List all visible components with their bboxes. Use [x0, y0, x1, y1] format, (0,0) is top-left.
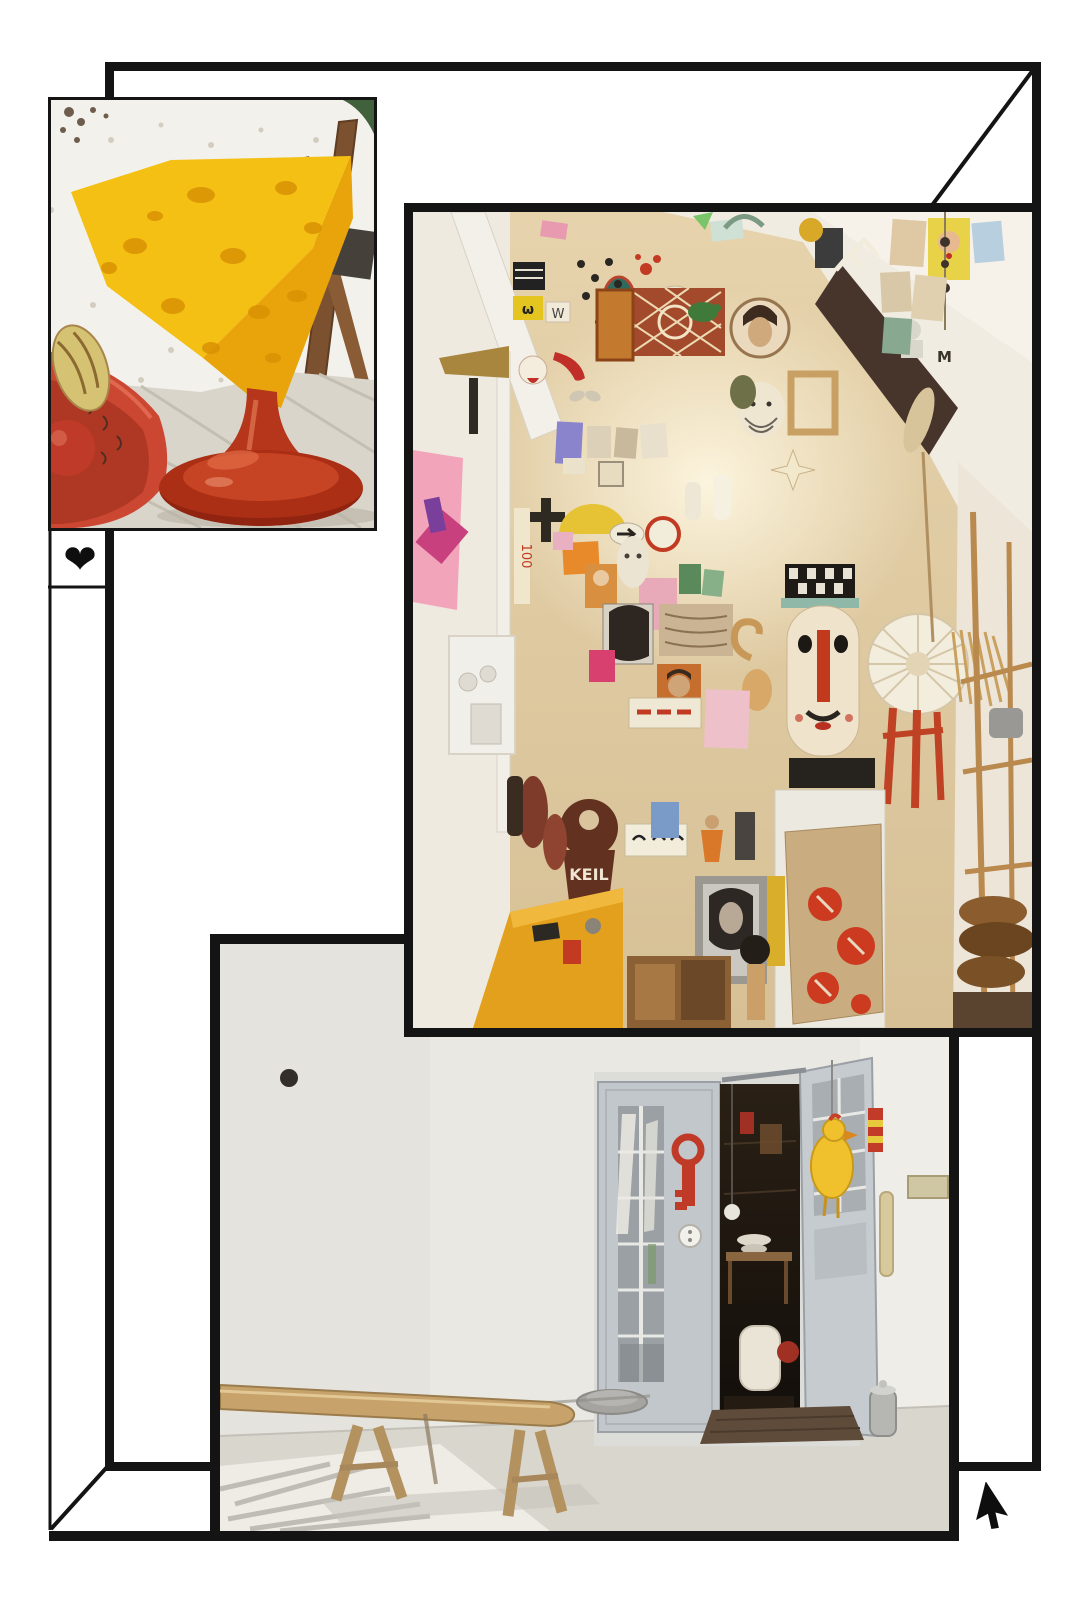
heart-icon: ❤	[50, 531, 110, 588]
w-label: W	[552, 307, 565, 322]
gray-disc	[577, 1390, 647, 1414]
left-door-leaf	[598, 1082, 720, 1432]
milk-can	[870, 1380, 896, 1436]
gallery-photo: ω W	[413, 212, 1032, 1028]
ruff-fan	[868, 614, 968, 714]
big-carnival-head	[781, 564, 859, 756]
cheese-photo	[51, 100, 374, 528]
keil-label: KEIL	[569, 865, 608, 884]
wall-dot	[280, 1069, 298, 1087]
hundred-label: 100	[518, 544, 533, 569]
cursor-icon	[968, 1482, 1024, 1544]
omega-label: ω	[522, 302, 534, 318]
bottom-left-diagonal	[51, 1466, 108, 1529]
open-doorway	[720, 1084, 800, 1430]
m-label: M	[937, 348, 952, 366]
black-box	[789, 758, 875, 788]
mail-plate	[908, 1176, 948, 1198]
doormat	[700, 1406, 864, 1444]
collage-canvas: ω W	[0, 0, 1080, 1620]
gallery-photo-frame: ω W	[404, 203, 1041, 1037]
doorbell	[679, 1225, 701, 1247]
cheese-photo-frame	[48, 97, 377, 531]
